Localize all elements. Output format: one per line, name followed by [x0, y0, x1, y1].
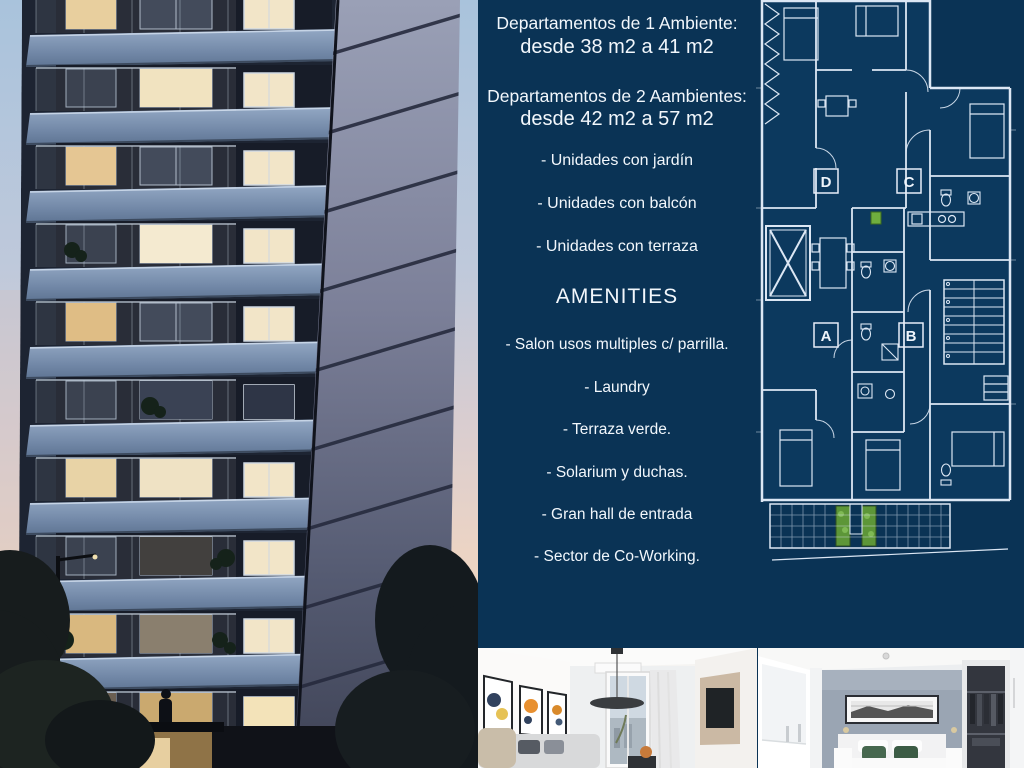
info-panel: Departamentos de 1 Ambiente: desde 38 m2… — [478, 0, 756, 648]
amenity-laundry: - Laundry — [478, 379, 756, 397]
coffee-table — [628, 756, 656, 768]
unit2-title: Departamentos de 2 Aambientes: — [478, 86, 756, 106]
floor-plan: D C A B — [756, 0, 1024, 620]
unit2-size: desde 42 m2 a 57 m2 — [478, 108, 756, 131]
unit-label-c: C — [904, 174, 915, 191]
floor-lamp-shade — [478, 728, 516, 768]
building-render — [0, 0, 478, 768]
bed — [838, 734, 962, 768]
amenity-coworking: - Sector de Co-Working. — [478, 548, 756, 566]
unit-label-b: B — [906, 328, 917, 345]
unit1-size: desde 38 m2 a 41 m2 — [478, 36, 756, 59]
floor-plan-svg: D C A B — [756, 0, 1024, 620]
wardrobe — [962, 660, 1010, 768]
nightstand-left — [834, 748, 852, 768]
feature-jardin: - Unidades con jardín — [478, 152, 756, 170]
amenity-salon: - Salon usos multiples c/ parrilla. — [478, 336, 756, 354]
window — [758, 656, 810, 768]
amenity-hall: - Gran hall de entrada — [478, 506, 756, 524]
ceiling-spotlight — [883, 653, 889, 659]
curtain — [650, 670, 680, 768]
real-estate-flyer: Departamentos de 1 Ambiente: desde 38 m2… — [0, 0, 1024, 768]
cabinet-side — [1010, 648, 1024, 768]
orange-decor — [640, 746, 652, 758]
amenities-title: AMENITIES — [478, 285, 756, 309]
window-jamb — [810, 668, 822, 768]
unit-label-a: A — [821, 328, 832, 345]
bedroom-photo-svg — [758, 648, 1024, 768]
sconce-right — [951, 727, 957, 733]
building-render-svg — [0, 0, 478, 768]
nightstand-right — [946, 748, 964, 768]
amenity-solarium: - Solarium y duchas. — [478, 464, 756, 482]
tv-screen — [706, 688, 734, 728]
unit-label-d: D — [821, 174, 832, 191]
panoramic-art — [846, 696, 938, 723]
sconce-left — [843, 727, 849, 733]
living-room-photo — [478, 648, 757, 768]
feature-balcon: - Unidades con balcón — [478, 195, 756, 213]
unit1-title: Departamentos de 1 Ambiente: — [478, 13, 756, 33]
bedroom-photo — [758, 648, 1024, 768]
feature-terraza: - Unidades con terraza — [478, 238, 756, 256]
amenity-terraza: - Terraza verde. — [478, 421, 756, 439]
plan-balcony — [770, 504, 1008, 560]
tower-front-face — [18, 0, 344, 768]
living-room-photo-svg — [478, 648, 757, 768]
